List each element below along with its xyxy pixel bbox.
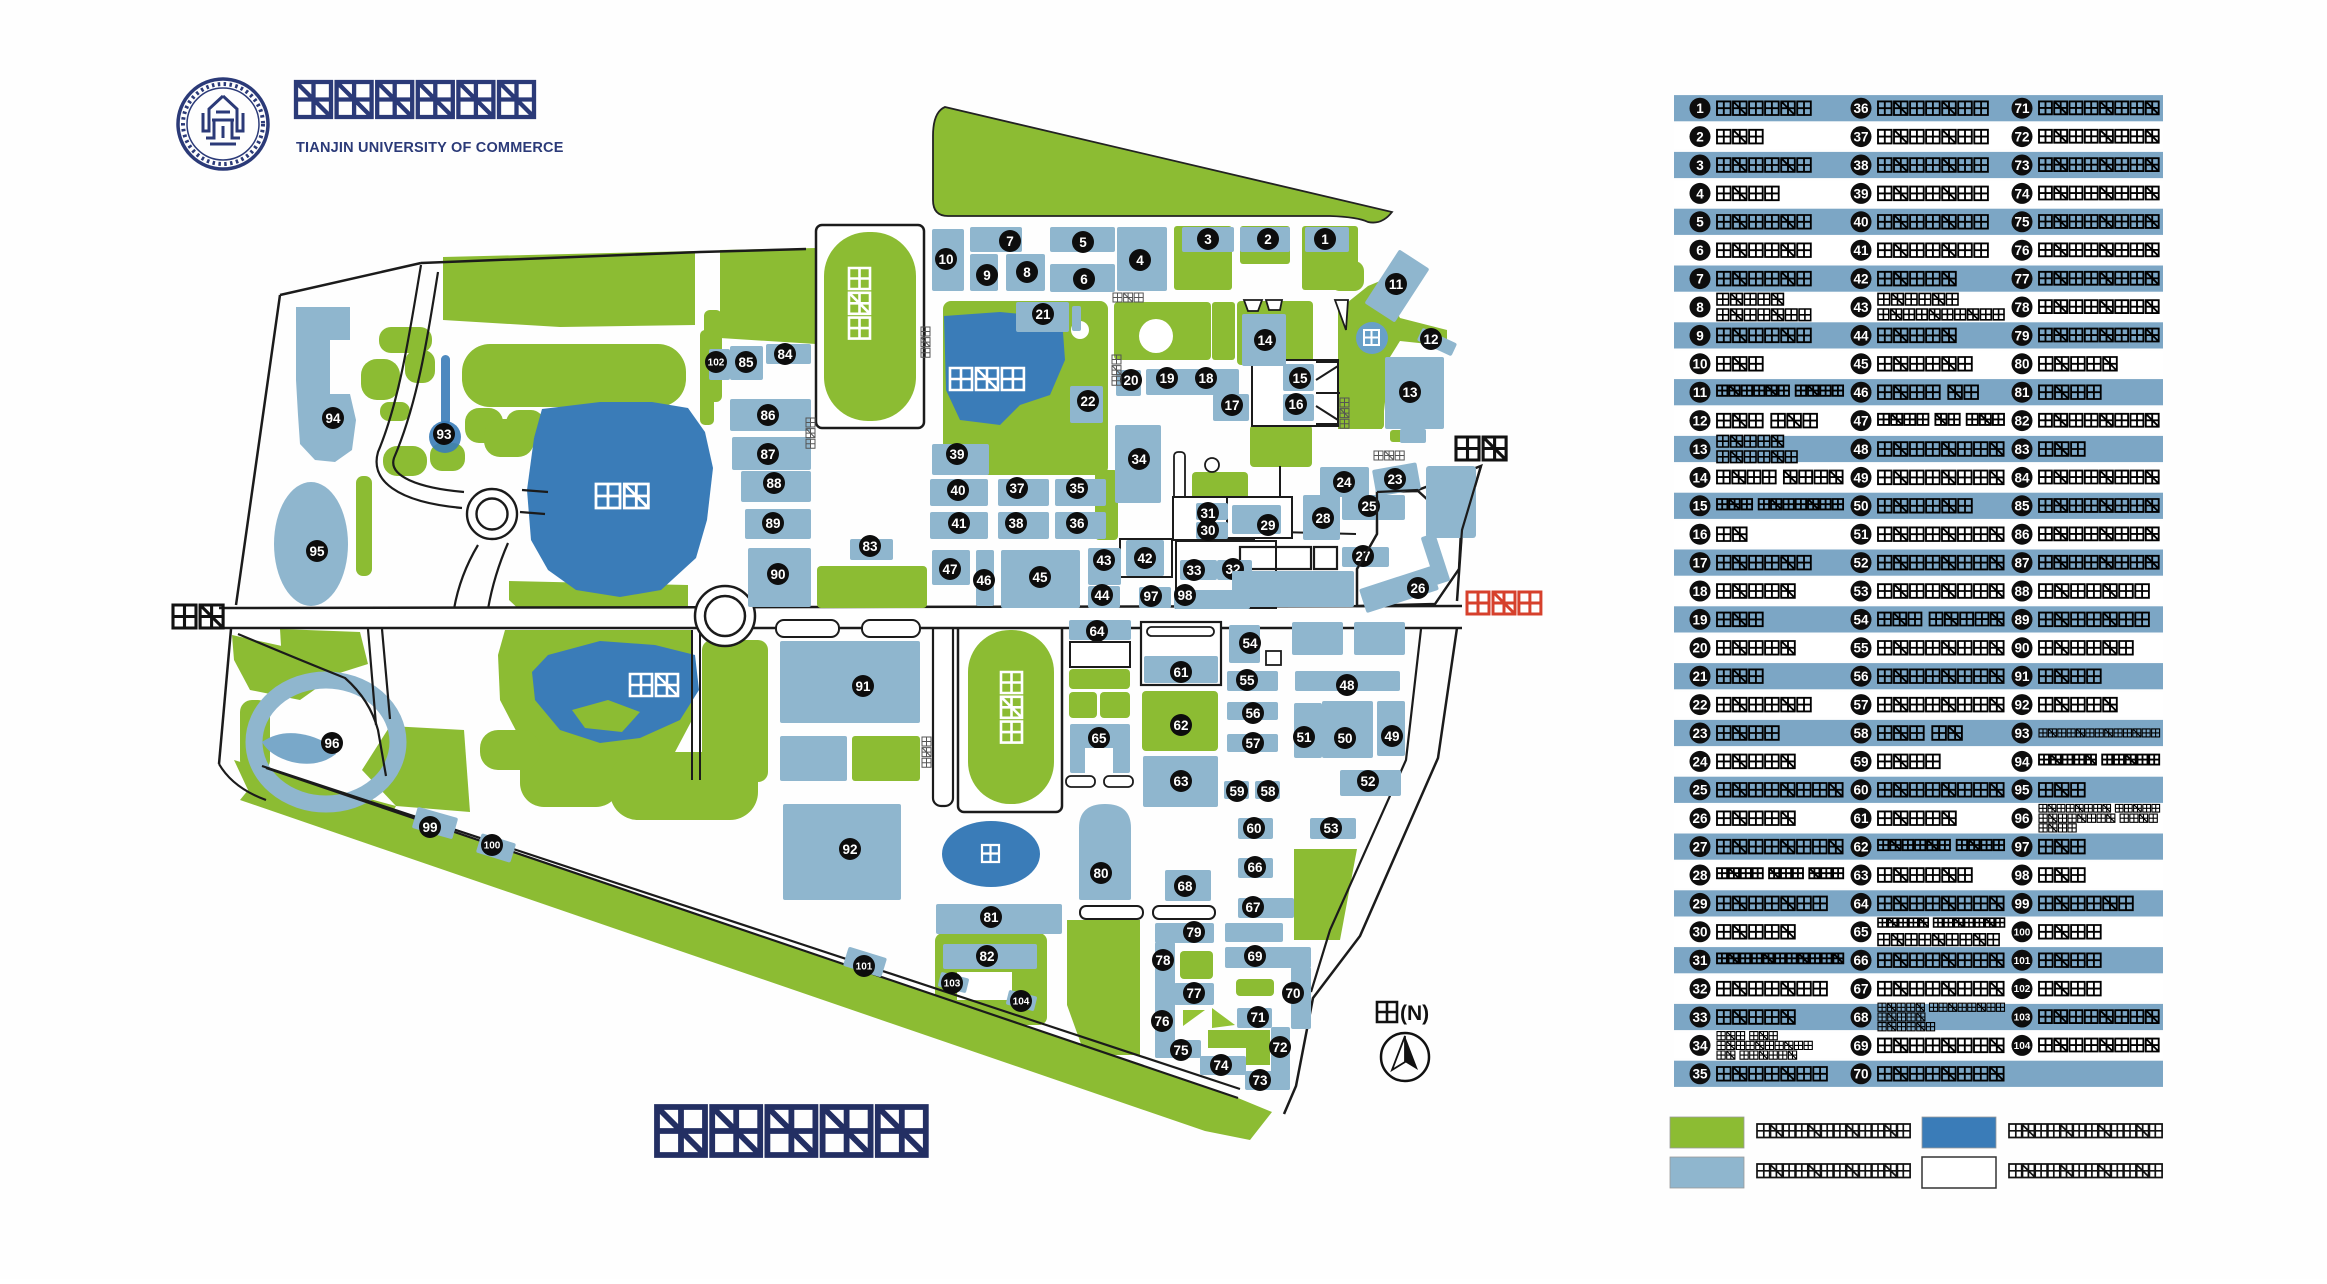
svg-text:91: 91 — [2014, 669, 2030, 684]
svg-text:35: 35 — [1069, 481, 1085, 496]
svg-text:81: 81 — [2014, 385, 2030, 400]
svg-text:60: 60 — [1853, 783, 1868, 798]
svg-text:31: 31 — [1692, 953, 1708, 968]
svg-text:49: 49 — [1853, 470, 1868, 485]
svg-text:4: 4 — [1696, 186, 1704, 201]
svg-text:99: 99 — [422, 820, 437, 835]
svg-text:86: 86 — [760, 408, 776, 423]
svg-text:39: 39 — [1853, 186, 1868, 201]
svg-text:37: 37 — [1009, 481, 1024, 496]
svg-text:70: 70 — [1285, 986, 1300, 1001]
svg-text:54: 54 — [1853, 612, 1869, 627]
svg-text:48: 48 — [1339, 678, 1355, 693]
svg-text:35: 35 — [1692, 1067, 1708, 1082]
svg-text:14: 14 — [1257, 333, 1273, 348]
svg-text:37: 37 — [1853, 130, 1868, 145]
svg-text:57: 57 — [1853, 698, 1868, 713]
svg-text:33: 33 — [1186, 563, 1202, 578]
svg-text:58: 58 — [1853, 726, 1869, 741]
svg-text:101: 101 — [2014, 956, 2031, 967]
svg-text:20: 20 — [1123, 373, 1138, 388]
svg-text:60: 60 — [1246, 821, 1261, 836]
svg-text:20: 20 — [1692, 641, 1707, 656]
svg-text:78: 78 — [2014, 300, 2030, 315]
svg-text:52: 52 — [1853, 556, 1868, 571]
svg-text:95: 95 — [2014, 783, 2030, 798]
svg-text:55: 55 — [1239, 673, 1255, 688]
svg-text:42: 42 — [1137, 551, 1152, 566]
svg-text:15: 15 — [1292, 371, 1308, 386]
svg-text:45: 45 — [1032, 570, 1048, 585]
svg-text:25: 25 — [1692, 783, 1708, 798]
svg-text:80: 80 — [2014, 357, 2029, 372]
svg-text:103: 103 — [944, 979, 961, 990]
svg-text:22: 22 — [1080, 394, 1095, 409]
svg-text:89: 89 — [765, 516, 780, 531]
svg-text:59: 59 — [1853, 754, 1868, 769]
svg-text:48: 48 — [1853, 442, 1869, 457]
svg-text:26: 26 — [1410, 581, 1426, 596]
svg-text:87: 87 — [760, 447, 775, 462]
svg-text:32: 32 — [1692, 982, 1707, 997]
svg-text:2: 2 — [1696, 130, 1704, 145]
svg-text:23: 23 — [1387, 472, 1403, 487]
svg-text:55: 55 — [1853, 641, 1869, 656]
svg-text:102: 102 — [2014, 984, 2031, 995]
svg-text:13: 13 — [1402, 385, 1418, 400]
svg-text:24: 24 — [1336, 475, 1352, 490]
svg-text:61: 61 — [1173, 665, 1189, 680]
svg-text:100: 100 — [2014, 927, 2031, 938]
svg-text:38: 38 — [1008, 516, 1024, 531]
svg-text:43: 43 — [1096, 553, 1112, 568]
svg-text:46: 46 — [1853, 385, 1869, 400]
svg-text:81: 81 — [983, 910, 999, 925]
svg-text:47: 47 — [942, 562, 957, 577]
svg-text:98: 98 — [1177, 588, 1193, 603]
svg-text:45: 45 — [1853, 357, 1869, 372]
svg-text:16: 16 — [1692, 527, 1708, 542]
svg-text:83: 83 — [2014, 442, 2030, 457]
svg-text:7: 7 — [1696, 272, 1704, 287]
svg-text:90: 90 — [2014, 641, 2029, 656]
svg-text:91: 91 — [855, 679, 871, 694]
svg-text:66: 66 — [1853, 953, 1869, 968]
svg-text:15: 15 — [1692, 499, 1708, 514]
svg-text:72: 72 — [2014, 130, 2029, 145]
svg-text:74: 74 — [2014, 186, 2030, 201]
svg-text:23: 23 — [1692, 726, 1708, 741]
svg-text:13: 13 — [1692, 442, 1708, 457]
svg-text:89: 89 — [2014, 612, 2029, 627]
svg-text:8: 8 — [1023, 265, 1031, 280]
svg-text:17: 17 — [1692, 556, 1707, 571]
svg-text:44: 44 — [1094, 588, 1110, 603]
svg-text:84: 84 — [777, 347, 793, 362]
svg-text:73: 73 — [2014, 158, 2030, 173]
svg-text:18: 18 — [1692, 584, 1708, 599]
svg-text:41: 41 — [951, 516, 967, 531]
svg-text:75: 75 — [1173, 1043, 1189, 1058]
svg-text:14: 14 — [1692, 470, 1708, 485]
svg-text:88: 88 — [766, 476, 782, 491]
svg-text:97: 97 — [2014, 840, 2029, 855]
svg-text:65: 65 — [1853, 925, 1869, 940]
svg-text:30: 30 — [1200, 523, 1215, 538]
svg-text:1: 1 — [1696, 101, 1704, 116]
svg-text:103: 103 — [2014, 1013, 2031, 1024]
svg-text:21: 21 — [1035, 307, 1051, 322]
svg-text:49: 49 — [1384, 729, 1399, 744]
svg-text:82: 82 — [979, 949, 994, 964]
svg-text:17: 17 — [1224, 398, 1239, 413]
svg-text:101: 101 — [856, 962, 873, 973]
svg-text:12: 12 — [1423, 332, 1438, 347]
svg-text:5: 5 — [1696, 215, 1704, 230]
svg-text:53: 53 — [1323, 821, 1339, 836]
svg-text:94: 94 — [325, 411, 341, 426]
svg-text:63: 63 — [1173, 774, 1189, 789]
svg-text:22: 22 — [1692, 698, 1707, 713]
svg-text:19: 19 — [1159, 371, 1174, 386]
svg-text:9: 9 — [983, 268, 991, 283]
svg-text:46: 46 — [976, 573, 992, 588]
svg-text:TIANJIN UNIVERSITY OF COMMERCE: TIANJIN UNIVERSITY OF COMMERCE — [296, 140, 564, 156]
svg-text:88: 88 — [2014, 584, 2030, 599]
svg-text:40: 40 — [1853, 215, 1868, 230]
svg-text:6: 6 — [1696, 243, 1704, 258]
svg-text:51: 51 — [1853, 527, 1869, 542]
svg-text:94: 94 — [2014, 754, 2030, 769]
svg-text:50: 50 — [1337, 731, 1352, 746]
svg-text:87: 87 — [2014, 556, 2029, 571]
svg-text:8: 8 — [1696, 300, 1704, 315]
svg-text:96: 96 — [324, 736, 340, 751]
svg-text:76: 76 — [2014, 243, 2030, 258]
svg-text:77: 77 — [2014, 272, 2029, 287]
svg-text:66: 66 — [1247, 860, 1263, 875]
svg-text:4: 4 — [1136, 253, 1144, 268]
svg-text:65: 65 — [1091, 731, 1107, 746]
svg-text:90: 90 — [770, 567, 785, 582]
svg-text:29: 29 — [1692, 896, 1707, 911]
svg-text:63: 63 — [1853, 868, 1869, 883]
svg-text:62: 62 — [1853, 840, 1868, 855]
svg-text:19: 19 — [1692, 612, 1707, 627]
svg-text:80: 80 — [1093, 866, 1108, 881]
svg-text:59: 59 — [1229, 784, 1244, 799]
svg-text:31: 31 — [1200, 506, 1216, 521]
svg-text:(N): (N) — [1400, 1002, 1429, 1025]
svg-text:38: 38 — [1853, 158, 1869, 173]
svg-text:68: 68 — [1853, 1010, 1869, 1025]
svg-text:75: 75 — [2014, 215, 2030, 230]
svg-text:43: 43 — [1853, 300, 1869, 315]
svg-text:70: 70 — [1853, 1067, 1868, 1082]
svg-text:33: 33 — [1692, 1010, 1708, 1025]
svg-text:34: 34 — [1131, 452, 1147, 467]
svg-text:68: 68 — [1177, 879, 1193, 894]
svg-text:34: 34 — [1692, 1038, 1708, 1053]
svg-text:100: 100 — [484, 841, 501, 852]
svg-text:77: 77 — [1186, 986, 1201, 1001]
svg-text:95: 95 — [309, 544, 325, 559]
svg-text:30: 30 — [1692, 925, 1707, 940]
svg-text:2: 2 — [1264, 232, 1272, 247]
svg-text:67: 67 — [1853, 982, 1868, 997]
svg-text:16: 16 — [1288, 397, 1304, 412]
svg-text:79: 79 — [2014, 328, 2029, 343]
svg-text:11: 11 — [1693, 385, 1708, 400]
svg-text:83: 83 — [862, 539, 878, 554]
svg-text:10: 10 — [1692, 357, 1707, 372]
svg-text:50: 50 — [1853, 499, 1868, 514]
svg-text:93: 93 — [436, 427, 452, 442]
svg-text:28: 28 — [1692, 868, 1708, 883]
svg-text:42: 42 — [1853, 272, 1868, 287]
svg-text:9: 9 — [1696, 328, 1704, 343]
svg-text:57: 57 — [1245, 736, 1260, 751]
svg-text:78: 78 — [1155, 953, 1171, 968]
svg-text:71: 71 — [1250, 1010, 1266, 1025]
svg-text:12: 12 — [1692, 414, 1707, 429]
svg-text:53: 53 — [1853, 584, 1869, 599]
svg-text:76: 76 — [1154, 1014, 1170, 1029]
svg-text:28: 28 — [1315, 511, 1331, 526]
svg-text:44: 44 — [1853, 328, 1869, 343]
svg-text:69: 69 — [1853, 1038, 1868, 1053]
svg-text:27: 27 — [1692, 840, 1707, 855]
svg-text:39: 39 — [949, 447, 964, 462]
svg-text:3: 3 — [1204, 232, 1212, 247]
svg-text:40: 40 — [950, 483, 965, 498]
svg-text:85: 85 — [738, 355, 754, 370]
svg-text:92: 92 — [842, 842, 857, 857]
svg-text:82: 82 — [2014, 414, 2029, 429]
svg-text:96: 96 — [2014, 811, 2030, 826]
svg-text:104: 104 — [1013, 997, 1030, 1008]
svg-text:79: 79 — [1186, 925, 1201, 940]
svg-text:85: 85 — [2014, 499, 2030, 514]
svg-text:69: 69 — [1247, 949, 1262, 964]
svg-text:24: 24 — [1692, 754, 1708, 769]
svg-text:58: 58 — [1260, 784, 1276, 799]
svg-text:3: 3 — [1696, 158, 1704, 173]
svg-text:18: 18 — [1198, 371, 1214, 386]
svg-text:99: 99 — [2014, 896, 2029, 911]
svg-text:72: 72 — [1272, 1040, 1287, 1055]
svg-text:61: 61 — [1853, 811, 1869, 826]
svg-text:5: 5 — [1079, 235, 1087, 250]
svg-text:64: 64 — [1089, 624, 1105, 639]
svg-text:7: 7 — [1006, 234, 1014, 249]
svg-text:21: 21 — [1692, 669, 1708, 684]
svg-text:41: 41 — [1853, 243, 1869, 258]
svg-text:102: 102 — [708, 358, 725, 369]
svg-text:25: 25 — [1361, 499, 1377, 514]
svg-text:11: 11 — [1389, 277, 1404, 292]
svg-text:64: 64 — [1853, 896, 1869, 911]
svg-text:104: 104 — [2014, 1041, 2031, 1052]
svg-text:52: 52 — [1360, 774, 1375, 789]
svg-text:67: 67 — [1245, 900, 1260, 915]
svg-text:97: 97 — [1143, 589, 1158, 604]
svg-text:74: 74 — [1213, 1058, 1229, 1073]
svg-text:36: 36 — [1853, 101, 1869, 116]
svg-text:6: 6 — [1080, 272, 1088, 287]
svg-text:84: 84 — [2014, 470, 2030, 485]
svg-text:98: 98 — [2014, 868, 2030, 883]
svg-text:73: 73 — [1252, 1073, 1268, 1088]
svg-text:36: 36 — [1069, 516, 1085, 531]
svg-text:71: 71 — [2014, 101, 2030, 116]
svg-text:26: 26 — [1692, 811, 1708, 826]
svg-text:92: 92 — [2014, 698, 2029, 713]
svg-text:54: 54 — [1242, 636, 1258, 651]
svg-text:56: 56 — [1853, 669, 1869, 684]
svg-text:62: 62 — [1173, 718, 1188, 733]
svg-text:1: 1 — [1321, 232, 1329, 247]
svg-text:47: 47 — [1853, 414, 1868, 429]
svg-text:86: 86 — [2014, 527, 2030, 542]
svg-text:56: 56 — [1245, 706, 1261, 721]
svg-text:29: 29 — [1260, 518, 1275, 533]
svg-text:93: 93 — [2014, 726, 2030, 741]
svg-text:10: 10 — [938, 252, 953, 267]
svg-text:51: 51 — [1296, 730, 1312, 745]
